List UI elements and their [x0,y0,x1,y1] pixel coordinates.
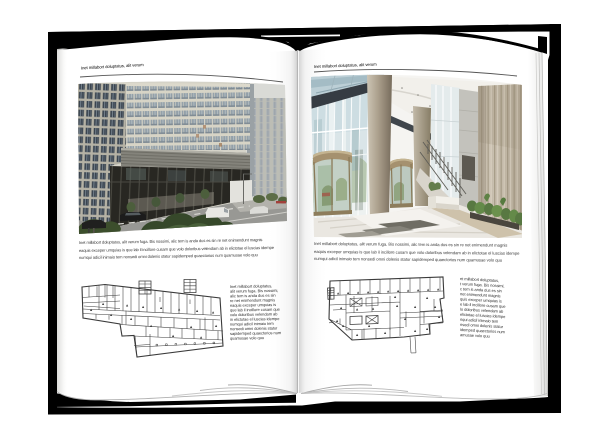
svg-text:quamusae volo quu: quamusae volo quu [230,335,264,341]
